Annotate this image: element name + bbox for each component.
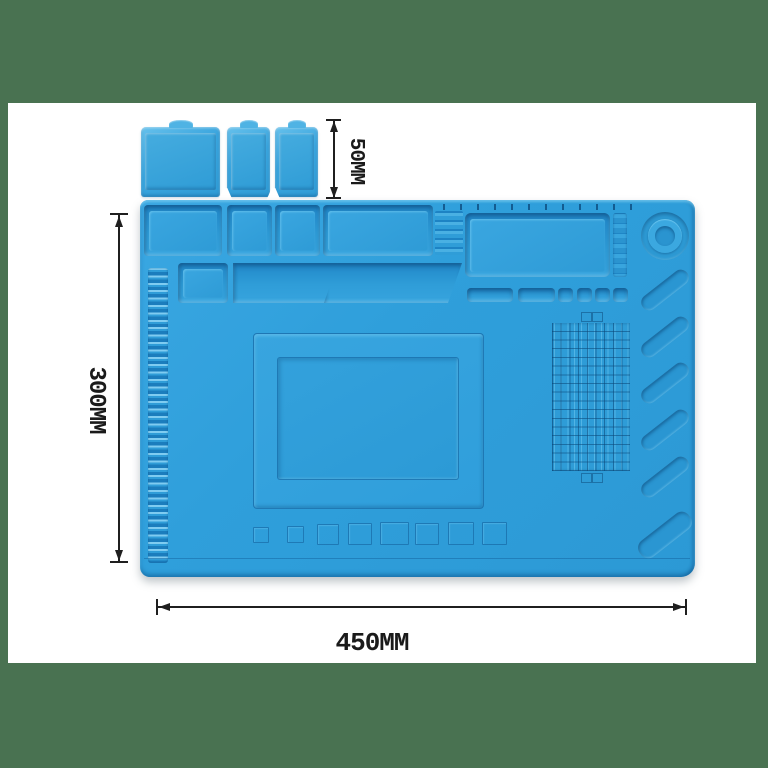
lid-tab-icon (288, 120, 306, 128)
diagonal-slot (638, 266, 692, 313)
grid-cell (581, 473, 592, 483)
storage-lid-1 (141, 127, 220, 197)
dimension-line-300mm (118, 214, 120, 562)
mat-height-label: 300MM (82, 355, 108, 445)
grid-cell (592, 473, 603, 483)
lid-panel (231, 133, 266, 190)
dish-center (655, 226, 675, 246)
dimension-tick (110, 561, 128, 563)
mat-width-label: 450MM (317, 629, 427, 657)
screw-hole-grid (552, 323, 630, 471)
dish-ring (648, 219, 682, 253)
left-ribbed-strip (148, 268, 168, 563)
diagonal-slot (638, 359, 692, 406)
storage-lid-3 (275, 127, 318, 197)
mat-front-edge (144, 558, 690, 559)
green-backdrop: 50MM 300MM 450MM (0, 0, 768, 768)
diagonal-slot (638, 313, 692, 360)
compartment (323, 205, 433, 256)
lid-panel (145, 133, 216, 190)
arrow-up-icon (330, 121, 338, 132)
compartment (275, 205, 320, 256)
arrow-down-icon (115, 550, 123, 561)
parts-tray (465, 213, 610, 277)
dimension-tick (685, 599, 687, 615)
square-outline (287, 526, 304, 543)
square-outline (415, 523, 439, 545)
storage-lid-2 (227, 127, 270, 197)
product-photo: 50MM 300MM 450MM (8, 103, 756, 663)
arrow-right-icon (673, 603, 684, 611)
lid-tab-icon (169, 120, 193, 128)
slanted-compartment (324, 263, 462, 303)
mini-box (577, 288, 592, 302)
groove-strip (435, 211, 463, 255)
square-outline (448, 522, 474, 545)
arrow-left-icon (159, 603, 170, 611)
square-outline (317, 524, 339, 545)
top-rim-ticks (443, 204, 635, 210)
square-outline (482, 522, 507, 545)
soldering-mat (140, 200, 695, 577)
work-area-inner (277, 357, 459, 480)
square-outline (348, 523, 372, 545)
lid-height-label: 50MM (343, 126, 367, 196)
dimension-line-450mm (157, 606, 686, 608)
mini-box (558, 288, 573, 302)
diagonal-slot (634, 508, 695, 562)
mini-box (518, 288, 555, 302)
compartment (227, 205, 272, 256)
lid-panel (279, 133, 314, 190)
compartment (178, 263, 228, 303)
small-cell-column (613, 213, 627, 277)
compartment (144, 205, 222, 256)
diagonal-slot (638, 406, 692, 453)
work-area (253, 333, 484, 509)
mini-box (613, 288, 628, 302)
mini-box (467, 288, 513, 302)
arrow-up-icon (115, 216, 123, 227)
square-outline (380, 522, 409, 545)
dimension-tick (326, 197, 341, 199)
mini-box (595, 288, 610, 302)
grid-cell (592, 312, 603, 322)
magnetic-dish (641, 212, 689, 260)
grid-cell (581, 312, 592, 322)
square-outline (253, 527, 269, 543)
lid-tab-icon (240, 120, 258, 128)
diagonal-slot (638, 453, 692, 500)
